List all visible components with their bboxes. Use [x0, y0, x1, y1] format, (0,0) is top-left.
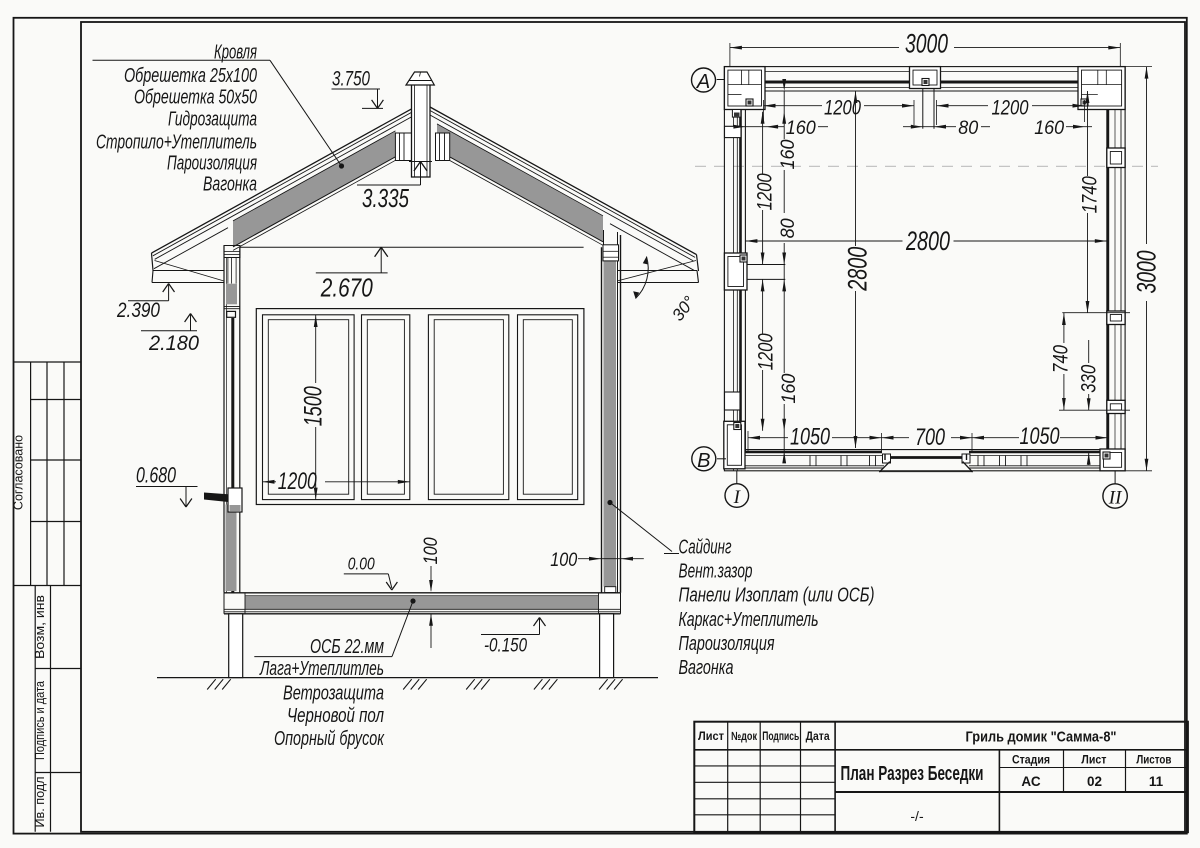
svg-text:1740: 1740: [1078, 176, 1102, 213]
svg-text:160: 160: [778, 373, 800, 403]
svg-text:1200: 1200: [992, 96, 1029, 120]
svg-text:160: 160: [1034, 117, 1064, 139]
svg-text:100: 100: [550, 549, 577, 571]
svg-text:330: 330: [1077, 365, 1100, 393]
svg-text:№док: №док: [731, 729, 758, 743]
svg-text:2.670: 2.670: [320, 273, 373, 303]
svg-text:Вагонка: Вагонка: [679, 657, 734, 679]
svg-text:11: 11: [1149, 774, 1164, 789]
svg-text:Обрешетка 50х50: Обрешетка 50х50: [134, 87, 257, 109]
svg-text:План Разрез Беседки: План Разрез Беседки: [841, 763, 984, 785]
svg-text:Каркас+Утеплитель: Каркас+Утеплитель: [679, 609, 819, 631]
svg-text:Стропило+Утеплитель: Стропило+Утеплитель: [96, 132, 257, 154]
svg-text:Подпись и дата: Подпись и дата: [33, 681, 47, 760]
svg-text:В: В: [697, 450, 710, 472]
svg-text:1200: 1200: [753, 173, 777, 210]
svg-text:Гриль домик "Самма-8": Гриль домик "Самма-8": [966, 729, 1117, 746]
svg-text:3000: 3000: [905, 29, 948, 59]
svg-text:80: 80: [958, 117, 978, 139]
svg-text:100: 100: [420, 537, 442, 564]
svg-text:Ветрозащита: Ветрозащита: [283, 683, 384, 705]
svg-text:160: 160: [786, 117, 816, 139]
svg-text:3.750: 3.750: [332, 68, 370, 91]
svg-text:0.00: 0.00: [348, 554, 375, 574]
svg-text:Обрешетка 25х100: Обрешетка 25х100: [124, 65, 257, 87]
svg-text:3000: 3000: [1132, 251, 1162, 294]
svg-text:Согласовано: Согласовано: [12, 435, 26, 510]
svg-text:А: А: [696, 71, 710, 93]
svg-text:Лист: Лист: [698, 729, 724, 743]
svg-text:Листов: Листов: [1136, 753, 1171, 767]
svg-text:Вент.зазор: Вент.зазор: [679, 561, 753, 583]
svg-text:1200: 1200: [754, 333, 778, 370]
svg-text:II: II: [1108, 488, 1123, 509]
svg-text:Черновой пол: Черновой пол: [287, 705, 384, 727]
svg-text:Вагонка: Вагонка: [203, 174, 257, 196]
svg-text:2.390: 2.390: [116, 298, 160, 322]
svg-text:160: 160: [777, 139, 799, 169]
svg-text:Опорный брусок: Опорный брусок: [274, 728, 385, 750]
svg-text:Сайдинг: Сайдинг: [679, 537, 732, 559]
svg-text:Пароизоляция: Пароизоляция: [679, 633, 775, 655]
svg-text:-/-: -/-: [910, 808, 924, 824]
svg-text:3.335: 3.335: [362, 183, 409, 213]
svg-text:1500: 1500: [300, 386, 328, 426]
svg-text:Кровля: Кровля: [214, 42, 257, 64]
svg-text:02: 02: [1087, 774, 1102, 789]
svg-text:740: 740: [1049, 345, 1072, 373]
svg-text:80: 80: [777, 218, 799, 238]
svg-text:Возм, инв: Возм, инв: [33, 595, 47, 659]
svg-text:Лага+Утеплитлеь: Лага+Утеплитлеь: [259, 658, 384, 680]
svg-text:2800: 2800: [905, 226, 950, 256]
svg-text:700: 700: [915, 424, 945, 451]
svg-text:1200: 1200: [278, 468, 317, 495]
svg-text:Пароизоляция: Пароизоляция: [167, 153, 257, 175]
svg-text:1050: 1050: [790, 424, 830, 451]
svg-text:Гидрозащита: Гидрозащита: [168, 109, 257, 131]
svg-text:Лист: Лист: [1081, 753, 1106, 767]
svg-text:1050: 1050: [1020, 423, 1060, 450]
svg-text:2.180: 2.180: [148, 331, 199, 355]
svg-text:Ив. подл: Ив. подл: [33, 777, 47, 828]
svg-text:Подпись: Подпись: [762, 729, 799, 743]
svg-text:АС: АС: [1021, 774, 1040, 789]
svg-text:Панели Изоплат (или ОСБ): Панели Изоплат (или ОСБ): [679, 585, 875, 607]
svg-text:0.680: 0.680: [136, 463, 177, 488]
svg-text:Дата: Дата: [806, 729, 830, 743]
svg-text:-0.150: -0.150: [484, 636, 527, 657]
svg-text:2800: 2800: [843, 247, 873, 292]
svg-text:Стадия: Стадия: [1012, 753, 1050, 767]
svg-text:ОСБ 22.мм: ОСБ 22.мм: [310, 636, 384, 658]
